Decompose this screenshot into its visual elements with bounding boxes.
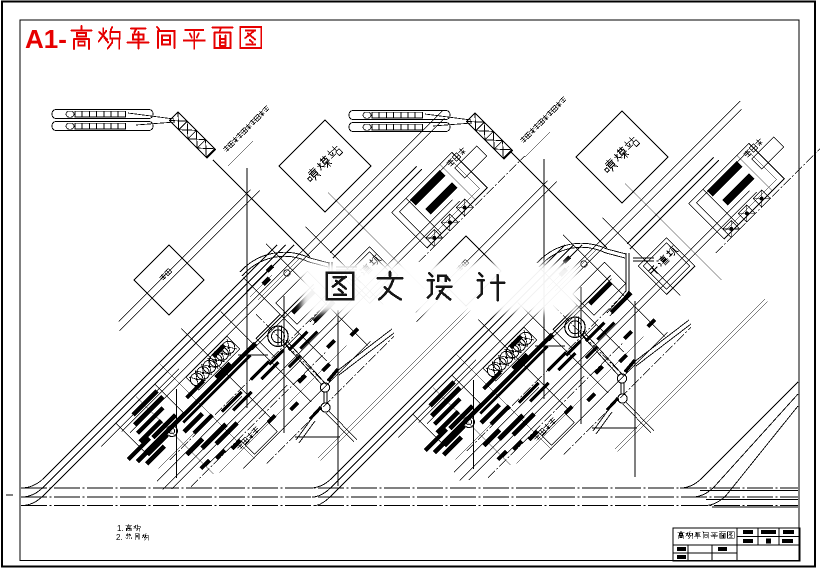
svg-text:A1-: A1- (25, 24, 67, 54)
svg-text:2.: 2. (116, 533, 123, 542)
svg-text:1.: 1. (117, 524, 124, 533)
